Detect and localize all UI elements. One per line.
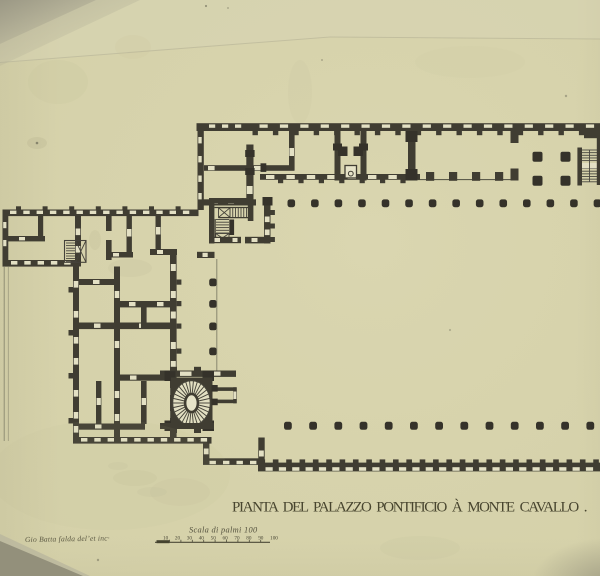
svg-text:Scala di palmi 100: Scala di palmi 100 xyxy=(189,526,258,535)
svg-text:Gio Batta falda del’et inc·: Gio Batta falda del’et inc· xyxy=(25,534,110,544)
svg-text:PIANTA DEL PALAZZO PONTIFICIO: PIANTA DEL PALAZZO PONTIFICIO À MONTE CA… xyxy=(232,499,588,516)
